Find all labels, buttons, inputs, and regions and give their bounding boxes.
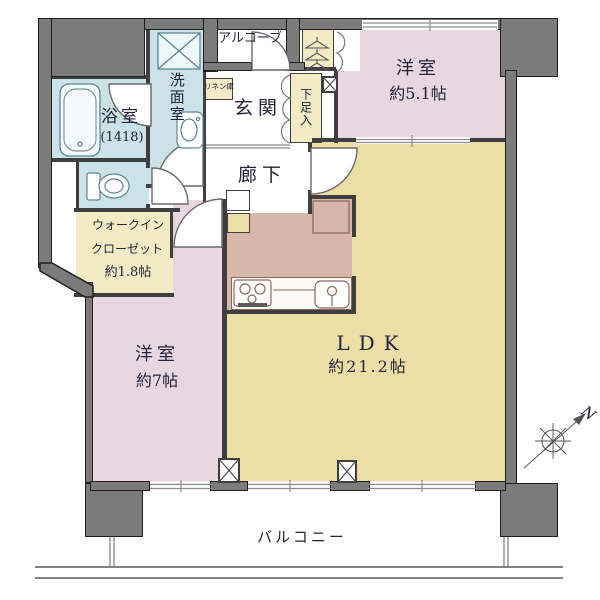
ldk-size: 約21.2帖 <box>328 359 408 376</box>
window-top-lines <box>363 19 497 31</box>
corridor-label: 廊下 <box>238 166 286 186</box>
sliding-door-51-lines <box>356 135 470 147</box>
floorplan-canvas: 浴室 (1418) 洗面室 リネン庫 アルコーブ 玄関 下足入 廊下 洋室 約5… <box>0 0 600 600</box>
wic-size: 約1.8帖 <box>105 266 152 280</box>
entrance-label: 玄関 <box>234 99 282 119</box>
shoe-cabinet-label: 下足入 <box>299 88 312 127</box>
bedroom-51-label: 洋室 <box>396 60 440 79</box>
shoe-cabinet-bifold-icon <box>281 75 290 143</box>
entrance-step-lines <box>206 145 290 148</box>
bedroom-7-size: 約7帖 <box>136 373 178 390</box>
sink-icon <box>315 281 349 308</box>
window-bedroom7-lines <box>150 480 212 492</box>
ldk-door-swing <box>311 148 357 194</box>
toilet-icon <box>87 173 129 200</box>
closet-bifold-icon <box>337 32 345 72</box>
bedroom-7-label: 洋室 <box>135 346 179 365</box>
compass-icon <box>524 413 586 468</box>
alcove-label: アルコーブ <box>218 32 282 46</box>
washroom-label: 洗面室 <box>168 72 184 123</box>
bathtub-icon <box>60 84 100 156</box>
linen-cabinet-label: リネン庫 <box>204 83 234 91</box>
bedroom-7-door-swing <box>174 199 222 247</box>
window-ldk-left-lines <box>248 480 332 492</box>
bedroom-51-size: 約5.1帖 <box>389 86 446 103</box>
stove-icon <box>234 280 271 307</box>
wic-label-line1: ウォークイン <box>92 219 164 232</box>
bathroom-dimension: (1418) <box>100 131 143 145</box>
balcony-railing <box>35 567 563 578</box>
hanger-icon <box>306 37 328 70</box>
outer-wall-diagonal <box>40 263 93 297</box>
ldk-label: LDK <box>336 333 407 354</box>
fridge-icon <box>313 201 349 233</box>
washer-pan-icon <box>158 33 200 69</box>
bathroom-label: 浴室 <box>101 109 141 127</box>
balcony-label: バルコニー <box>257 530 347 546</box>
window-ldk-right-lines <box>368 480 477 492</box>
wic-label-line2: クローゼット <box>91 243 163 256</box>
